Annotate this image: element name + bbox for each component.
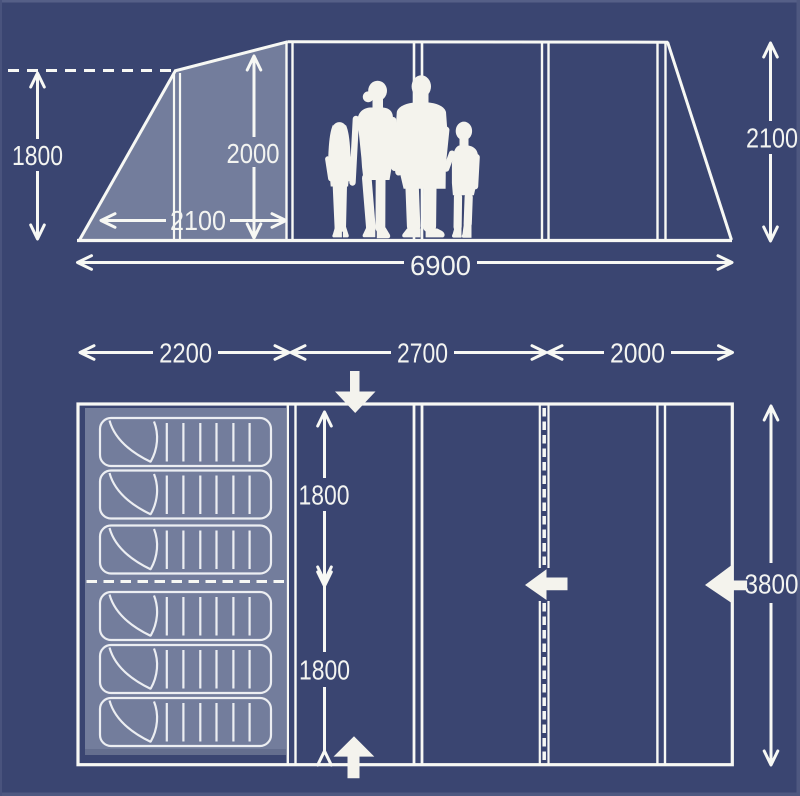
svg-text:6900: 6900 — [410, 250, 471, 281]
svg-text:2100: 2100 — [746, 122, 798, 153]
svg-text:2000: 2000 — [610, 338, 665, 369]
svg-text:2000: 2000 — [227, 138, 280, 169]
svg-text:1800: 1800 — [299, 480, 350, 511]
svg-text:1800: 1800 — [299, 655, 350, 686]
svg-text:1800: 1800 — [12, 140, 63, 171]
svg-text:2200: 2200 — [159, 338, 212, 369]
svg-text:2700: 2700 — [397, 338, 448, 369]
svg-text:2100: 2100 — [170, 205, 226, 236]
svg-text:3800: 3800 — [745, 568, 799, 599]
